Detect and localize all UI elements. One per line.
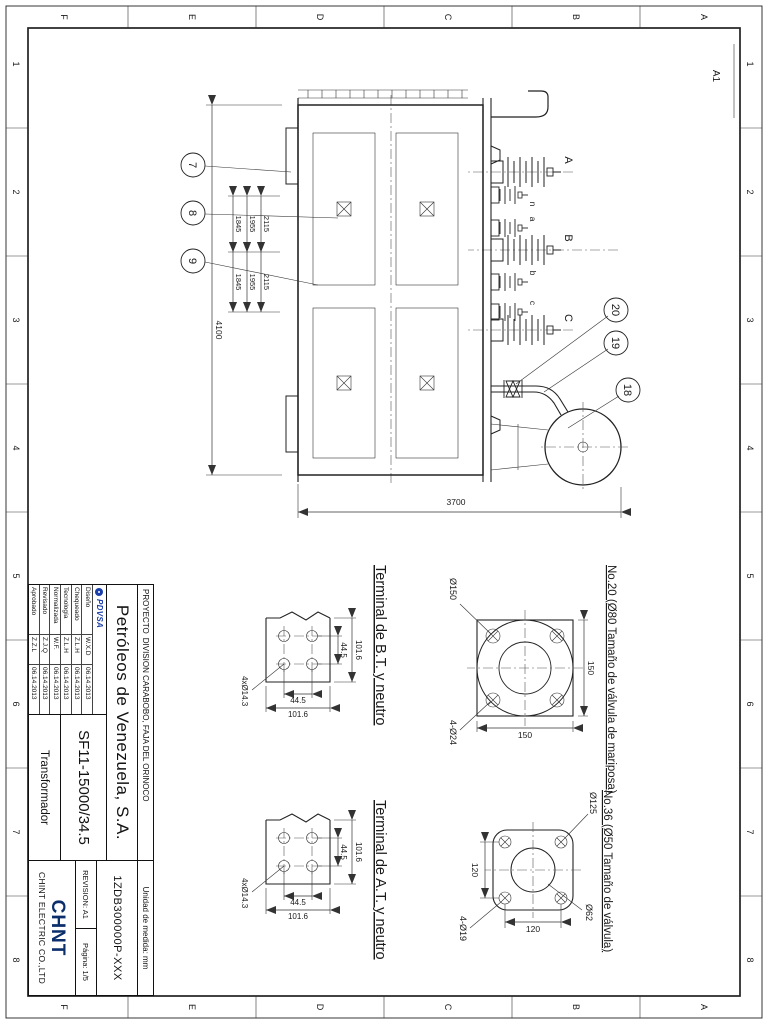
zone-col-label: 2 — [11, 189, 21, 194]
chint-logo: CHNT — [48, 900, 67, 957]
approval-name: Z.J.Q — [40, 635, 50, 665]
dim-overall-length: 4100 — [214, 321, 224, 340]
dim-valve80-holes: 4-Ø24 — [448, 720, 458, 745]
pdvsa-logo-text: PDVSA — [95, 599, 104, 628]
approval-name: W.F. — [50, 635, 60, 665]
dim-spacing: 2115 — [262, 274, 271, 290]
callout-9: 9 — [186, 258, 198, 264]
approval-date: 06.14.2013 — [29, 665, 39, 714]
approval-name: W.X.D — [82, 635, 92, 665]
dim-spacing: 1845 — [234, 216, 243, 233]
zone-row-label: E — [187, 14, 197, 20]
dim-at-outer-v: 101.6 — [288, 912, 309, 921]
terminal-bt-caption: Terminal de B.T. y neutro — [372, 565, 388, 725]
zone-row-label: F — [59, 1004, 69, 1010]
approval-date: 06.14.2013 — [50, 665, 60, 714]
project-label: PROYECTO — [141, 589, 150, 634]
zone-col-label: 6 — [745, 701, 755, 706]
approval-role: Revisado — [40, 585, 50, 635]
lv-bushing-a — [491, 219, 528, 237]
zone-row-label: C — [443, 14, 453, 21]
callouts-upper: 20 19 18 — [516, 298, 640, 428]
lv-label-n: n — [528, 202, 538, 207]
zone-row-label: B — [571, 1004, 581, 1010]
dim-bt-holes: 4xØ14.3 — [240, 676, 249, 707]
overall-height-dimension: 3700 — [298, 484, 621, 518]
dim-bt-pitch-v: 44.5 — [290, 696, 306, 705]
sheet-size-label: A1 — [710, 70, 721, 83]
zone-col-label: 7 — [745, 829, 755, 834]
zone-col-label: 8 — [745, 957, 755, 962]
zone-row-label: C — [443, 1004, 453, 1011]
approval-row: Normalizada W.F. 06.14.2013 — [49, 585, 60, 714]
tank-ladder — [298, 90, 468, 98]
approval-role: Aprobado — [29, 585, 39, 635]
zone-col-label: 5 — [745, 573, 755, 578]
approval-row: Diseño W.X.D 06.14.2013 — [81, 585, 92, 714]
approval-row: Aprobado Z.Z.L 06.14.2013 — [29, 585, 39, 714]
dim-at-outer: 101.6 — [354, 842, 363, 863]
dim-bt-outer-v: 101.6 — [288, 710, 309, 719]
zone-col-label: 4 — [11, 445, 21, 450]
callout-18: 18 — [621, 384, 633, 396]
approval-row: Tecnología Z.L.H 06.14.2013 — [60, 585, 71, 714]
pdvsa-logo: PDVSA — [92, 585, 106, 714]
page-cell: Página: 1/5 — [76, 929, 96, 995]
transformer-model: SF11-15000/34.5 — [60, 715, 106, 860]
dim-at-pitch: 44.5 — [339, 844, 348, 860]
approval-role: Normalizada — [50, 585, 60, 635]
detail-valve50-caption: No.36 (Ø50 Tamaño de válvula) — [601, 790, 613, 952]
detail-valve50: No.36 (Ø50 Tamaño de válvula) Ø125 Ø62 1… — [458, 790, 613, 952]
zone-col-label: 3 — [745, 317, 755, 322]
phase-label-B: B — [562, 234, 574, 241]
approval-row: Chequeado Z.L.H 06.14.2013 — [71, 585, 82, 714]
drawing-sheet-viewport: 1 2 3 4 5 6 7 8 1 2 3 4 5 6 7 8 A B C D … — [0, 0, 768, 1024]
drawing-sheet: 1 2 3 4 5 6 7 8 1 2 3 4 5 6 7 8 A B C D … — [0, 0, 768, 1024]
approval-date: 06.14.2013 — [61, 665, 71, 714]
dim-valve80-right: 150 — [518, 730, 532, 740]
approval-table: PDVSA Diseño W.X.D 06.14.2013 Chequeado … — [29, 585, 106, 715]
lv-label-a: a — [528, 217, 538, 222]
zone-col-label: 5 — [11, 573, 21, 578]
conservator — [491, 402, 628, 492]
dim-bt-outer: 101.6 — [354, 640, 363, 661]
dim-valve80-flange: Ø150 — [448, 578, 458, 600]
callout-7: 7 — [186, 162, 198, 168]
callout-20: 20 — [609, 304, 621, 316]
approval-row: Revisado Z.J.Q 06.14.2013 — [39, 585, 50, 714]
callout-19: 19 — [609, 337, 621, 349]
lv-bushing-n — [491, 186, 528, 204]
transformer-elevation: A B C n a b c — [181, 90, 640, 518]
approval-role: Chequeado — [72, 585, 82, 635]
revision-cell: REVISION: A1 — [76, 861, 96, 929]
approval-date: 06.14.2013 — [72, 665, 82, 714]
zone-row-label: F — [59, 14, 69, 20]
manufacturer-name: CHINT ELECTRIC CO.,LTD — [37, 872, 47, 984]
tank-base — [286, 98, 298, 482]
butterfly-valve — [504, 380, 522, 398]
tank-body — [298, 105, 483, 475]
detail-terminal-bt: Terminal de B.T. y neutro 101.6 44.5 44.… — [240, 565, 388, 725]
terminal-at-caption: Terminal de A.T. y neutro — [372, 800, 388, 960]
zone-col-label: 2 — [745, 189, 755, 194]
zone-row-label: D — [315, 14, 325, 21]
detail-valve80: No.20 (Ø80 Tamaño de válvula de mariposa… — [448, 565, 617, 794]
zone-col-label: 1 — [745, 61, 755, 66]
tank-cover — [483, 98, 491, 482]
zone-col-label: 6 — [11, 701, 21, 706]
detail-terminal-at: Terminal de A.T. y neutro 101.6 44.5 44.… — [240, 800, 388, 960]
dim-bt-pitch: 44.5 — [339, 642, 348, 658]
zone-row-label: B — [571, 14, 581, 20]
sheet-size-marker: A1 — [710, 44, 734, 118]
title-block-top-row: PROYECTO DIVISION CARABOBO, FAJA DEL ORI… — [137, 585, 153, 995]
zone-col-label: 3 — [11, 317, 21, 322]
approval-date: 06.14.2013 — [40, 665, 50, 714]
phase-label-C: C — [562, 314, 574, 322]
dim-valve50-flange: Ø125 — [588, 792, 598, 814]
dim-at-pitch-v: 44.5 — [290, 898, 306, 907]
zone-row-label: D — [315, 1004, 325, 1011]
lv-label-b: b — [528, 271, 538, 276]
dim-spacing: 1955 — [248, 274, 257, 291]
zone-col-label: 1 — [11, 61, 21, 66]
tank-panels — [313, 133, 458, 458]
lv-bushing-b — [491, 273, 528, 291]
phase-label-A: A — [562, 156, 574, 164]
lv-label-c: c — [528, 301, 538, 306]
dim-valve50-pitch-v: 120 — [526, 924, 540, 934]
zone-row-label: A — [699, 1004, 709, 1010]
approval-name: Z.Z.L — [29, 635, 39, 665]
detail-valve80-caption: No.20 (Ø80 Tamaño de válvula de mariposa… — [605, 565, 617, 794]
manufacturer-cell: CHNT CHINT ELECTRIC CO.,LTD — [29, 861, 75, 995]
spacing-dimensions: 2115 2115 1955 1955 1845 1845 — [228, 196, 280, 312]
zone-row-label: A — [699, 14, 709, 20]
dim-valve80-top: 150 — [586, 661, 596, 675]
dim-overall-height: 3700 — [447, 497, 466, 507]
approval-name: Z.L.H — [61, 635, 71, 665]
dim-at-holes: 4xØ14.3 — [240, 878, 249, 909]
pdvsa-logo-icon — [96, 588, 104, 596]
title-block: PROYECTO DIVISION CARABOBO, FAJA DEL ORI… — [28, 584, 154, 996]
customer-name: Petróleos de Venezuela, S.A. — [106, 585, 137, 860]
vent-pipe — [491, 91, 548, 117]
dim-spacing: 1845 — [234, 274, 243, 291]
approval-role: Tecnología — [61, 585, 71, 635]
dim-valve50-pitch-h: 120 — [470, 863, 480, 877]
product-name: Transformador — [29, 715, 60, 860]
units-cell: Unidad de medida: mm — [138, 861, 153, 995]
zone-col-label: 8 — [11, 957, 21, 962]
project-name: DIVISION CARABOBO, FAJA DEL ORINOCO — [141, 638, 150, 802]
drawing-number: 1ZDB300000P-XXX — [96, 861, 137, 995]
zone-col-label: 4 — [745, 445, 755, 450]
callouts-lower: 7 8 9 — [181, 153, 338, 285]
zone-row-label: E — [187, 1004, 197, 1010]
dim-spacing: 2115 — [262, 216, 271, 232]
dim-spacing: 1955 — [248, 216, 257, 233]
oil-pipe — [491, 386, 568, 415]
approval-name: Z.L.H — [72, 635, 82, 665]
lv-bushing-c — [491, 303, 528, 321]
callout-8: 8 — [186, 210, 198, 216]
zone-col-label: 7 — [11, 829, 21, 834]
dim-valve50-bore: Ø62 — [584, 904, 594, 921]
approval-role: Diseño — [82, 585, 92, 635]
dim-valve50-holes: 4-Ø19 — [458, 916, 468, 941]
approval-date: 06.14.2013 — [82, 665, 92, 714]
